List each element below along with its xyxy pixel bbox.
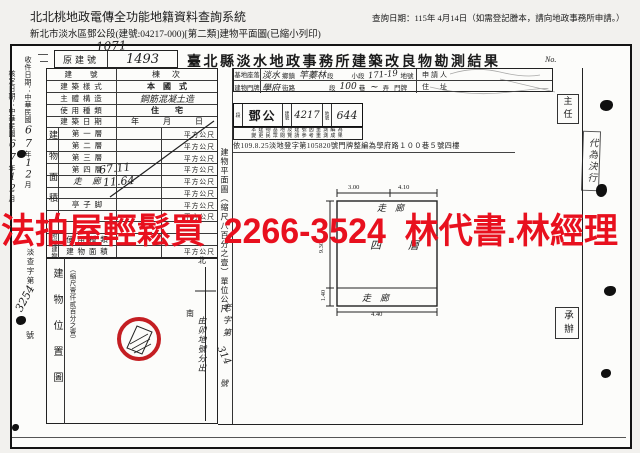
site-parcel-handwritten: 171-19: [367, 68, 398, 81]
floor-area: [117, 140, 161, 151]
address-label: 住 址: [417, 81, 552, 93]
row-value-handwritten: 鋼筋混凝土造: [117, 93, 217, 104]
position-map-label: 建物位置圖: [49, 268, 64, 398]
renumber-note: 依109.8.25淡地登字第105820號門牌整編為學府路１００巷５號四樓: [233, 141, 515, 153]
site-town-handwritten: 淡水: [262, 68, 280, 81]
dim-left-bottom: 1.40: [320, 290, 327, 301]
row-label: 建 築 樣 式: [47, 81, 117, 92]
area-unit: 平方公尺: [161, 128, 217, 139]
table-row: 建 號棟 次: [47, 69, 217, 81]
town-unit: 鄉鎮: [282, 70, 295, 80]
area-corridor-handwritten: 11.64: [103, 174, 135, 189]
south-label: 南: [186, 308, 194, 319]
doorplate-label: 建物門牌: [234, 81, 261, 93]
site-row: 基地座落 淡水 鄉鎮 竿蓁林 段 小段 171-19 地號 申請人: [234, 69, 552, 81]
area-unit: 平方公尺: [161, 164, 217, 175]
resurvey-box: 段 鄧公 建號 4217 地號 644: [233, 103, 363, 127]
floor-row: 平方公尺: [47, 188, 217, 199]
position-map-scale: （縮尺壹仟貳百分之壹）: [66, 266, 76, 343]
dim-top-right: 4.10: [398, 184, 409, 191]
area-unit: 平方公尺: [161, 176, 217, 187]
old-building-no-box: 原建號 1493: [54, 50, 178, 68]
site-label: 基地座落: [234, 69, 261, 80]
site-content: 淡水 鄉鎮 竿蓁林 段 小段 171-19 地號: [261, 69, 417, 80]
row-label: 主 體 構 造: [47, 93, 117, 104]
old-building-no-value: 1493: [108, 51, 177, 67]
old-building-no-label: 原建號: [55, 51, 108, 67]
resurvey-stamp-text: 本建物基地及建號因重測編為 變更民眾閱覽請參考重測成果: [233, 127, 363, 140]
tick-mark: [40, 61, 48, 62]
row-value: 棟 次: [117, 69, 217, 80]
map-doc-prefix-handwritten: 老字第: [220, 303, 232, 341]
area-unit: 平方公尺: [161, 140, 217, 151]
parcel-origin-handwritten: 由卯地號分出: [195, 316, 207, 373]
resurvey-bno-label: 建號: [283, 104, 292, 126]
position-map-divider: [64, 258, 65, 424]
alley-unit: 弄: [383, 82, 390, 92]
floor-area: [117, 128, 161, 139]
subsection-unit: 小段: [352, 70, 365, 80]
section-unit: 段: [327, 70, 334, 80]
resurvey-pno-label: 地號: [323, 104, 332, 126]
area-unit: 平方公尺: [161, 188, 217, 198]
door-lane-handwritten: 100: [340, 82, 357, 92]
approve-month-handwritten: 12: [7, 172, 18, 195]
street-unit: 街路: [282, 82, 295, 92]
doorplate-row: 建物門牌 學府 街路 段 100 巷 ~ 弄 門牌 住 址: [234, 81, 552, 93]
table-row: 使 用 種 類住 宅: [47, 105, 217, 117]
floor-row: 第 一 層平方公尺: [47, 128, 217, 140]
resurvey-section-label: 段: [234, 104, 243, 126]
plate-unit: 門牌: [394, 82, 407, 92]
app-window: 北北桃地政電傳全功能地籍資料查詢系統 查詢日期：115年 4月14日（如需登記謄…: [0, 0, 640, 453]
applicant-label: 申請人: [417, 69, 552, 80]
door-street-handwritten: 學府: [262, 81, 280, 94]
content-bottom-border: [218, 424, 583, 425]
chief-box: 主任: [557, 94, 579, 124]
site-section-handwritten: 竿蓁林: [299, 68, 326, 81]
no-label: No.: [545, 55, 556, 64]
delegate-stamp: 代為決行: [581, 131, 601, 192]
building-area-group-label: 建物面積: [47, 130, 60, 214]
app-title: 北北桃地政電傳全功能地籍資料查詢系統: [30, 8, 246, 25]
doc-no-suffix: 號: [26, 330, 34, 341]
floor-area: [117, 188, 161, 198]
parcel-unit: 地號: [400, 70, 413, 80]
approve-date-column: 核定日期：中華民國67年12月: [6, 70, 19, 203]
document-subtitle: 新北市淡水區鄧公段(建號:04217-000)[第二類]建物平面圖(已縮小列印): [30, 26, 321, 40]
receive-date-column: 收件日期：中華民國67年12月: [22, 56, 35, 189]
stamp-line-2: 變更民眾閱覽請參考重測成果: [234, 134, 362, 140]
receive-year-handwritten: 67: [22, 124, 35, 151]
receive-date-label: 收件日期：中華民國: [24, 56, 32, 124]
lane-unit: 巷: [359, 82, 366, 92]
watermark-text: 法拍屋輕鬆買 2266-3524 林代書.林經理: [1, 203, 618, 254]
north-label: 北: [198, 255, 206, 266]
floor-row: 第 二 層平方公尺: [47, 140, 217, 152]
tick-mark: [38, 54, 48, 55]
doorplate-content: 學府 街路 段 100 巷 ~ 弄 門牌: [261, 81, 417, 93]
receive-month-handwritten: 12: [23, 158, 34, 181]
handler-box: 承辦: [555, 307, 579, 339]
dim-bottom: 4.40: [371, 311, 382, 318]
resurvey-pno-value: 644: [332, 104, 362, 126]
query-date: 查詢日期：115年 4月14日（如需登記謄本，請向地政事務所申請。）: [372, 12, 625, 24]
row-value: 本 國 式: [117, 81, 217, 92]
plan-bottom-label: 走 廊: [362, 291, 389, 304]
table-row: 建 築 日 期年 月 日: [47, 117, 217, 129]
site-doorplate-table: 基地座落 淡水 鄉鎮 竿蓁林 段 小段 171-19 地號 申請人 建物門牌 學…: [233, 68, 553, 92]
row-label: 建 築 日 期: [47, 117, 117, 128]
month-unit: 月: [24, 181, 32, 189]
approve-date-label: 核定日期：中華民國: [8, 70, 16, 138]
map-doc-suffix-handwritten: 號: [220, 378, 228, 389]
inner-bottom-line: [12, 437, 626, 438]
resurvey-bno-value: 4217: [292, 104, 323, 126]
floor-row: 第 三 層平方公尺: [47, 152, 217, 164]
row-label: 使 用 種 類: [47, 105, 117, 116]
door-section-unit: 段: [329, 82, 336, 92]
table-row: 主 體 構 造鋼筋混凝土造: [47, 93, 217, 105]
year-unit: 年: [8, 165, 16, 173]
area-unit: 平方公尺: [161, 152, 217, 163]
row-value: 年 月 日: [117, 117, 217, 128]
resurvey-section-name: 鄧公: [243, 104, 283, 126]
month-unit: 月: [8, 195, 16, 203]
row-label: 建 號: [47, 69, 117, 80]
row-value: 住 宅: [117, 105, 217, 116]
door-swirl-handwritten: ~: [370, 82, 378, 93]
dim-top-left: 3.00: [348, 184, 359, 191]
